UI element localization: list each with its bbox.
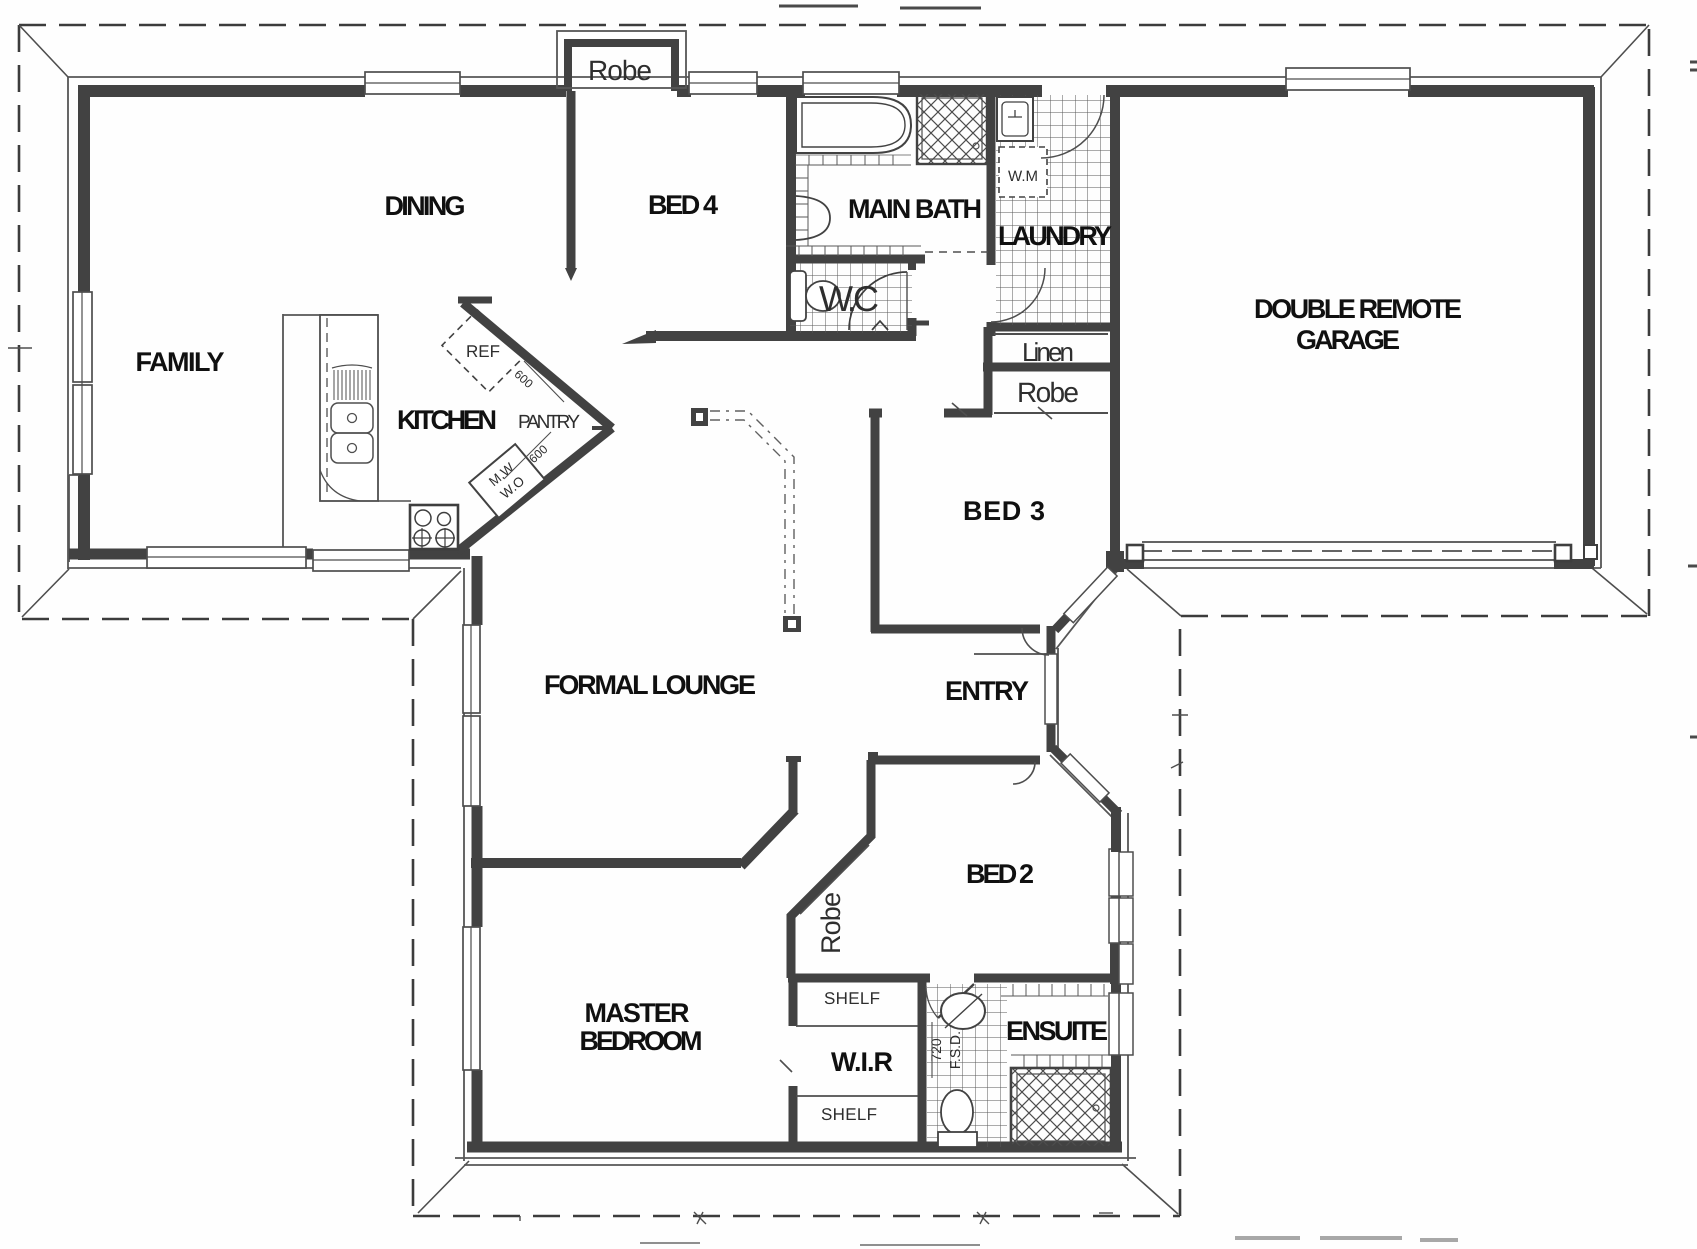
svg-text:SHELF: SHELF [821,1105,877,1124]
svg-text:W.I.R: W.I.R [831,1047,893,1077]
svg-text:F.S.D.: F.S.D. [947,1031,963,1069]
svg-text:SHELF: SHELF [824,989,880,1008]
svg-text:BEDROOM: BEDROOM [580,1026,703,1056]
svg-text:KITCHEN: KITCHEN [397,405,497,435]
svg-text:MAIN BATH: MAIN BATH [848,194,982,224]
svg-text:Robe: Robe [816,892,846,954]
svg-text:BED 3: BED 3 [963,496,1045,526]
svg-text:FORMAL LOUNGE: FORMAL LOUNGE [544,670,756,700]
svg-text:Linen: Linen [1022,337,1074,367]
svg-text:DINING: DINING [385,191,466,221]
svg-text:REF: REF [466,342,500,361]
svg-text:BED 4: BED 4 [648,190,718,220]
svg-text:ENSUITE: ENSUITE [1006,1016,1108,1046]
svg-text:720: 720 [928,1038,944,1062]
svg-text:DOUBLE REMOTE: DOUBLE REMOTE [1254,294,1462,324]
svg-text:W.M: W.M [1008,168,1038,185]
svg-text:FAMILY: FAMILY [136,347,225,377]
svg-text:Robe: Robe [1017,377,1079,408]
svg-text:ENTRY: ENTRY [945,676,1029,706]
svg-text:600: 600 [512,367,536,391]
svg-text:GARAGE: GARAGE [1296,325,1400,355]
svg-text:LAUNDRY: LAUNDRY [998,221,1112,251]
svg-text:PANTRY: PANTRY [518,412,580,433]
svg-text:MASTER: MASTER [585,998,690,1028]
svg-text:BED 2: BED 2 [966,859,1034,889]
svg-text:W.C: W.C [819,278,879,319]
svg-text:Robe: Robe [588,55,652,86]
